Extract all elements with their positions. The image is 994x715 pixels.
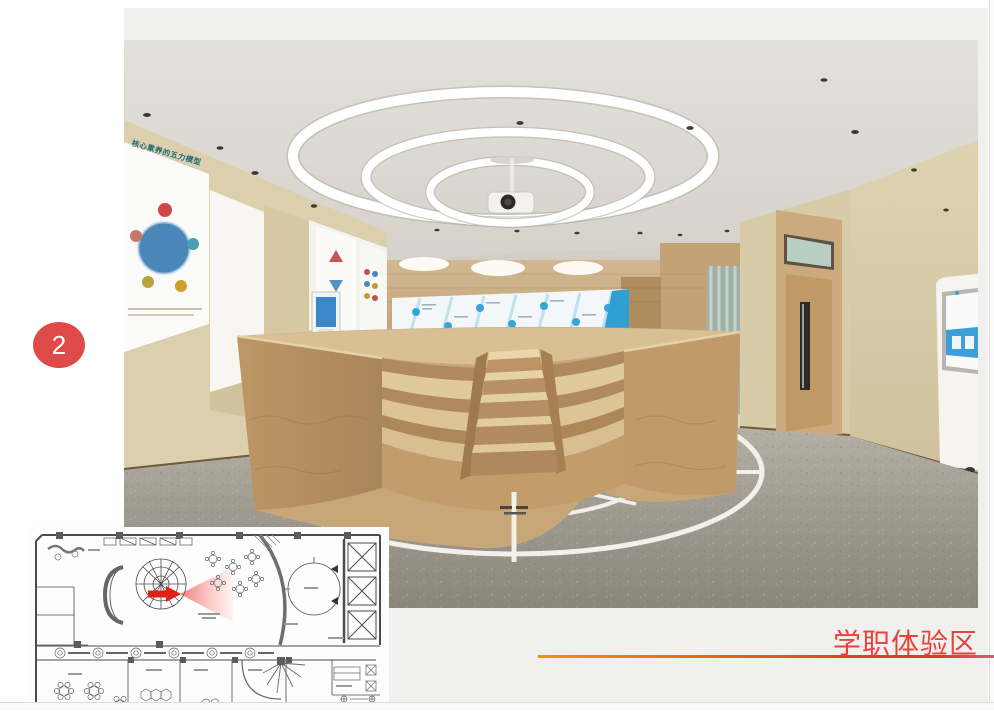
plan-curved-wall: [254, 535, 285, 645]
plan-sofa: [48, 546, 84, 552]
plan-elevators: [344, 539, 376, 643]
page-right-margin: [989, 0, 994, 710]
plan-arrow-left-2: [331, 597, 338, 605]
door-wall: [740, 190, 850, 442]
plan-arrow-left-1: [331, 565, 338, 573]
slide-number: 2: [52, 330, 66, 361]
plan-bench: [105, 567, 123, 623]
plan-amphitheatre: [136, 559, 186, 609]
interior-render-image: 核心素养的五力模型: [124, 40, 978, 608]
amphitheatre-side-right: [624, 332, 740, 496]
plan-tree-symbol: [242, 657, 305, 699]
amphitheatre-side-left: [237, 336, 382, 510]
render-scene: [124, 40, 978, 608]
plan-cabinets: [104, 538, 192, 545]
wood-door: [776, 210, 842, 442]
amphitheatre-steps: [460, 349, 566, 480]
plan-circle-room: [284, 557, 340, 615]
slide-number-badge: 2: [33, 322, 85, 368]
floor-plan-thumbnail: [28, 527, 389, 710]
title-underline: [538, 655, 994, 658]
plan-walls: [36, 535, 380, 710]
floor-plan-drawing: [28, 527, 389, 710]
infographic-poster: [124, 142, 209, 352]
plan-corridor-columns: [55, 648, 274, 658]
display-stand: [936, 274, 978, 473]
